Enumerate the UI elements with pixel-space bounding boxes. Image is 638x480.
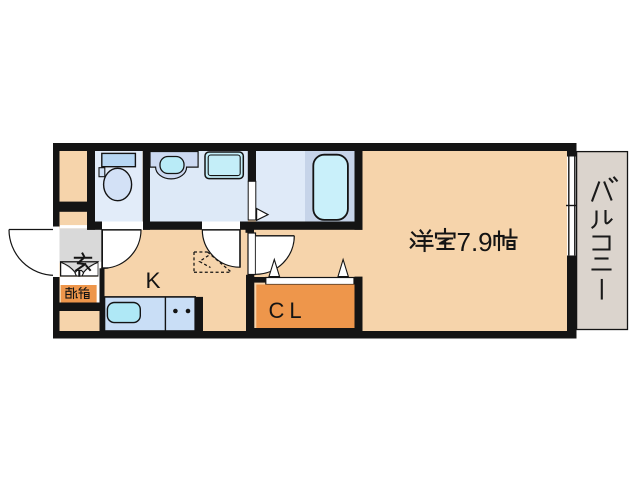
svg-text:CL: CL xyxy=(269,298,307,323)
svg-text:K: K xyxy=(146,268,161,293)
svg-text:7.9: 7.9 xyxy=(457,227,493,257)
